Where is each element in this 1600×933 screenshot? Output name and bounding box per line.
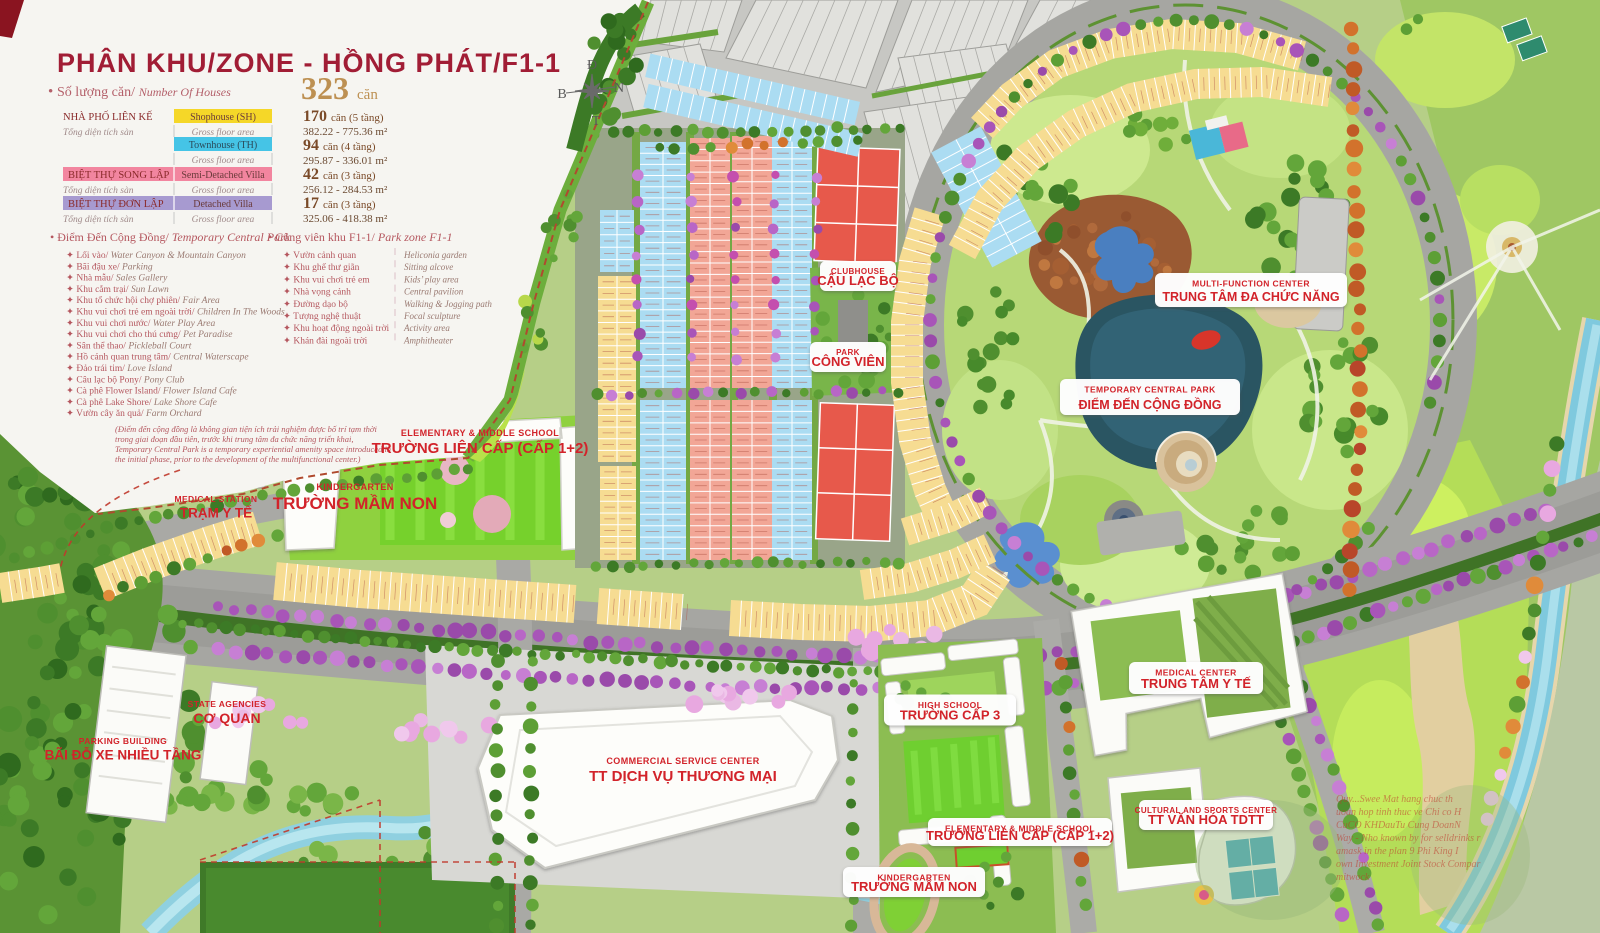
svg-text:(Điểm đến cộng đồng là không g: (Điểm đến cộng đồng là không gian tiện í… (115, 424, 377, 434)
svg-text:Focal sculpture: Focal sculpture (403, 311, 460, 321)
svg-text:✦ Vườn cảnh quan: ✦ Vườn cảnh quan (283, 250, 356, 261)
svg-text:✦ Nhà mẫu/ Sales Gallery: ✦ Nhà mẫu/ Sales Gallery (66, 273, 168, 284)
svg-text:KINDERGARTEN: KINDERGARTEN (316, 482, 393, 492)
svg-text:TEMPORARY CENTRAL PARK: TEMPORARY CENTRAL PARK (1084, 385, 1216, 395)
svg-text:NHÀ PHỐ LIÊN KẾ: NHÀ PHỐ LIÊN KẾ (63, 110, 153, 123)
svg-text:Shophouse (SH): Shophouse (SH) (190, 112, 256, 123)
svg-text:✦ Khu vui chơi cho thú cưng/ P: ✦ Khu vui chơi cho thú cưng/ Pet Paradis… (66, 329, 232, 340)
svg-text:CÔNG VIÊN: CÔNG VIÊN (812, 354, 885, 369)
svg-text:✦ Hồ cảnh quan trung tâm/ Cent: ✦ Hồ cảnh quan trung tâm/ Central Waters… (66, 352, 249, 363)
svg-text:COMMERCIAL SERVICE CENTER: COMMERCIAL SERVICE CENTER (606, 756, 759, 766)
svg-text:Gross floor area: Gross floor area (192, 155, 255, 166)
svg-text:• Công viên khu F1-1/ Park zon: • Công viên khu F1-1/ Park zone F1-1 (268, 230, 453, 244)
svg-text:Temporary Central Park is a te: Temporary Central Park is a temporary ex… (115, 444, 391, 454)
svg-text:CƠ QUAN: CƠ QUAN (193, 710, 260, 726)
svg-text:✦ Tượng nghệ thuật: ✦ Tượng nghệ thuật (283, 311, 361, 322)
svg-text:Kids’ play area: Kids’ play area (403, 274, 459, 284)
svg-text:✦ Sân thể thao/ Pickleball Cou: ✦ Sân thể thao/ Pickleball Court (66, 340, 192, 351)
svg-text:TRƯỜNG MẦM NON: TRƯỜNG MẦM NON (273, 494, 438, 513)
svg-text:TT VĂN HÓA TDTT: TT VĂN HÓA TDTT (1148, 812, 1264, 827)
svg-text:• Điểm Đến Cộng Đồng/ Temporar: • Điểm Đến Cộng Đồng/ Temporary Central … (50, 230, 291, 244)
svg-text:Semi-Detached Villa: Semi-Detached Villa (181, 170, 265, 181)
svg-text:Central pavilion: Central pavilion (404, 287, 464, 297)
svg-text:BIỆT THỰ SONG LẬP: BIỆT THỰ SONG LẬP (68, 169, 170, 181)
svg-text:own Investment Joint Stock Com: own Investment Joint Stock Compar (1336, 859, 1481, 870)
svg-text:Tổng diện tích sàn: Tổng diện tích sàn (63, 127, 134, 138)
svg-text:325.06 - 418.38 m²: 325.06 - 418.38 m² (303, 213, 388, 225)
svg-text:✦ Câu lạc bộ Pony/ Pony Club: ✦ Câu lạc bộ Pony/ Pony Club (66, 374, 185, 385)
svg-text:Đ: Đ (587, 58, 597, 73)
svg-text:Detached Villa: Detached Villa (193, 199, 253, 210)
svg-text:Sitting alcove: Sitting alcove (404, 262, 453, 272)
svg-text:Gross floor area: Gross floor area (192, 214, 255, 225)
svg-text:Amphitheater: Amphitheater (403, 335, 453, 345)
svg-text:✦ Nhà vọng cảnh: ✦ Nhà vọng cảnh (283, 287, 351, 298)
svg-text:amask in the plan 9 Phi King I: amask in the plan 9 Phi King I (1336, 846, 1459, 857)
svg-text:✦ Khu hoạt động ngoài trời: ✦ Khu hoạt động ngoài trời (283, 323, 389, 334)
svg-text:trong giai đoạn đầu tiên, trướ: trong giai đoạn đầu tiên, trước khi trun… (115, 434, 354, 444)
svg-text:✦ Đường dạo bộ: ✦ Đường dạo bộ (283, 299, 348, 310)
svg-text:PARKING BUILDING: PARKING BUILDING (79, 736, 167, 746)
svg-text:uoan hop tinh thuc ve Chi co H: uoan hop tinh thuc ve Chi co H (1336, 807, 1462, 818)
svg-text:BÃI ĐỖ XE NHIỀU TẦNG: BÃI ĐỖ XE NHIỀU TẦNG (45, 748, 202, 763)
svg-text:CuCO KHDauTu Cung DoanN: CuCO KHDauTu Cung DoanN (1336, 820, 1462, 831)
svg-text:T: T (592, 114, 601, 129)
svg-text:N: N (614, 81, 624, 96)
svg-text:✦ Khán đài ngoài trời: ✦ Khán đài ngoài trời (283, 335, 368, 346)
svg-text:✦ Khu ghế thư giãn: ✦ Khu ghế thư giãn (283, 262, 360, 273)
svg-text:✦ Lối vào/ Water Canyon & Moun: ✦ Lối vào/ Water Canyon & Mountain Canyo… (66, 250, 246, 261)
svg-text:✦ Khu tổ chức hội chợ phiên/ F: ✦ Khu tổ chức hội chợ phiên/ Fair Area (66, 295, 220, 306)
svg-text:✦ Khu cắm trại/ Sun Lawn: ✦ Khu cắm trại/ Sun Lawn (66, 284, 169, 295)
svg-text:TRƯỜNG LIÊN CẤP (CẤP 1+2): TRƯỜNG LIÊN CẤP (CẤP 1+2) (372, 439, 589, 457)
svg-text:TRƯỜNG LIÊN CẤP (CẤP 1+2): TRƯỜNG LIÊN CẤP (CẤP 1+2) (926, 828, 1114, 843)
svg-text:Tổng diện tích sàn: Tổng diện tích sàn (63, 185, 134, 196)
svg-text:CẬU LẠC BỘ: CẬU LẠC BỘ (817, 273, 899, 288)
svg-text:BIỆT THỰ ĐƠN LẬP: BIỆT THỰ ĐƠN LẬP (68, 198, 164, 210)
svg-text:STATE AGENCIES: STATE AGENCIES (188, 699, 267, 709)
svg-text:✦ Khu vui chơi trẻ em: ✦ Khu vui chơi trẻ em (283, 274, 370, 285)
svg-text:Heliconia garden: Heliconia garden (403, 250, 467, 260)
svg-text:Activity area: Activity area (403, 323, 450, 333)
svg-text:✦ Bãi đậu xe/ Parking: ✦ Bãi đậu xe/ Parking (66, 261, 153, 272)
svg-text:Quy...Swee Mat hang chuc th: Quy...Swee Mat hang chuc th (1336, 794, 1453, 805)
svg-text:ĐIỂM ĐẾN CỘNG ĐỒNG: ĐIỂM ĐẾN CỘNG ĐỒNG (1078, 397, 1221, 412)
svg-text:Townhouse (TH): Townhouse (TH) (189, 140, 257, 151)
svg-text:B: B (557, 87, 566, 102)
svg-text:✦ Vườn cây ăn quả/ Farm Orchar: ✦ Vườn cây ăn quả/ Farm Orchard (66, 408, 202, 419)
svg-text:Gross floor area: Gross floor area (192, 127, 255, 138)
svg-text:✦ Đảo trái tim/ Love Island: ✦ Đảo trái tim/ Love Island (66, 363, 172, 374)
svg-text:TT DỊCH VỤ THƯƠNG MẠI: TT DỊCH VỤ THƯƠNG MẠI (589, 768, 777, 785)
svg-text:✦ Khu vui chơi trẻ em ngoài tr: ✦ Khu vui chơi trẻ em ngoài trời/ Childr… (66, 307, 285, 318)
svg-text:MULTI-FUNCTION CENTER: MULTI-FUNCTION CENTER (1192, 279, 1310, 289)
svg-text:Tổng diện tích sàn: Tổng diện tích sàn (63, 214, 134, 225)
svg-text:• Số lượng căn/ Number Of Hous: • Số lượng căn/ Number Of Houses (48, 84, 231, 100)
svg-text:Gross floor area: Gross floor area (192, 185, 255, 196)
svg-text:mitwock: mitwock (1336, 872, 1370, 883)
svg-text:✦ Cà phê Flower Island/ Flower: ✦ Cà phê Flower Island/ Flower Island Ca… (66, 386, 237, 397)
svg-text:TRUNG TÂM Y TẾ: TRUNG TÂM Y TẾ (1141, 676, 1251, 691)
svg-text:Walking & Jogging path: Walking & Jogging path (404, 299, 492, 309)
svg-text:✦ Khu vui chơi nước/ Water Pla: ✦ Khu vui chơi nước/ Water Play Area (66, 318, 215, 329)
svg-text:TRUNG TÂM ĐA CHỨC NĂNG: TRUNG TÂM ĐA CHỨC NĂNG (1162, 289, 1339, 304)
svg-text:TRƯỜNG CẤP 3: TRƯỜNG CẤP 3 (900, 708, 1000, 723)
svg-text:Way - Nho known by for selldri: Way - Nho known by for selldrinks r (1336, 833, 1480, 844)
svg-text:✦ Cà phê Lake Shore/ Lake Shor: ✦ Cà phê Lake Shore/ Lake Shore Cafe (66, 397, 217, 408)
svg-text:ELEMENTARY & MIDDLE SCHOOL: ELEMENTARY & MIDDLE SCHOOL (401, 428, 559, 438)
svg-text:TRẠM Y TẾ: TRẠM Y TẾ (180, 506, 252, 521)
svg-text:the initial phase, prior to th: the initial phase, prior to the developm… (115, 454, 361, 464)
svg-text:TRƯỜNG MẦM NON: TRƯỜNG MẦM NON (851, 879, 977, 894)
svg-text:MEDICAL STATION: MEDICAL STATION (175, 494, 258, 504)
